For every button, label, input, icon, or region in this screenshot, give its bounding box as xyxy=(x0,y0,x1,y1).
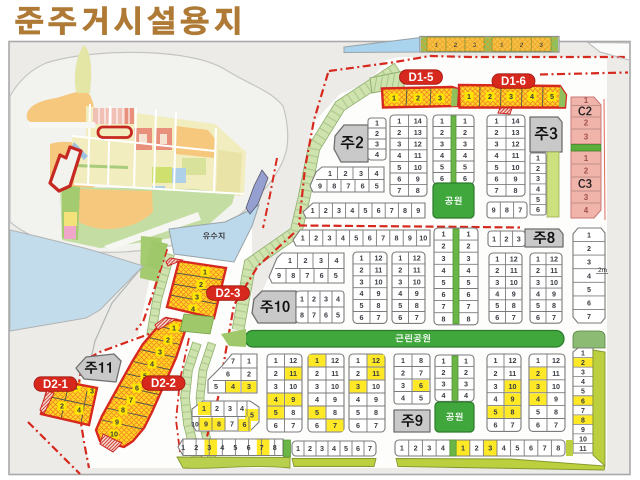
svg-text:3: 3 xyxy=(397,140,401,149)
svg-text:2: 2 xyxy=(356,369,360,378)
svg-text:1: 1 xyxy=(495,116,499,125)
svg-text:1: 1 xyxy=(315,356,319,365)
svg-text:7: 7 xyxy=(442,302,446,311)
svg-text:2: 2 xyxy=(314,234,318,243)
svg-text:5: 5 xyxy=(587,285,591,294)
svg-text:1: 1 xyxy=(296,444,300,453)
svg-text:5: 5 xyxy=(274,408,278,417)
svg-text:10: 10 xyxy=(191,421,199,428)
svg-text:6: 6 xyxy=(368,234,372,243)
svg-text:6: 6 xyxy=(226,370,230,379)
svg-text:8: 8 xyxy=(511,408,515,417)
svg-text:5: 5 xyxy=(495,301,499,310)
svg-text:1: 1 xyxy=(442,356,446,365)
svg-text:4: 4 xyxy=(350,206,354,215)
svg-text:3: 3 xyxy=(587,258,591,267)
svg-text:7: 7 xyxy=(260,443,264,452)
svg-text:2: 2 xyxy=(308,444,312,453)
svg-text:7: 7 xyxy=(467,302,471,311)
svg-text:4: 4 xyxy=(401,394,405,403)
svg-text:4: 4 xyxy=(335,256,339,265)
svg-text:11: 11 xyxy=(579,446,587,453)
svg-text:6: 6 xyxy=(495,313,499,322)
svg-text:4: 4 xyxy=(341,234,345,243)
svg-text:12: 12 xyxy=(331,356,339,365)
svg-text:7: 7 xyxy=(231,357,235,366)
svg-text:6: 6 xyxy=(274,421,278,430)
svg-text:5: 5 xyxy=(495,163,499,172)
svg-text:10: 10 xyxy=(413,277,421,286)
svg-text:3: 3 xyxy=(440,139,444,148)
svg-text:7: 7 xyxy=(587,312,591,321)
svg-text:1: 1 xyxy=(587,231,591,240)
svg-text:5: 5 xyxy=(550,92,554,101)
svg-text:7: 7 xyxy=(511,421,515,430)
svg-text:4: 4 xyxy=(360,289,364,298)
svg-text:8: 8 xyxy=(291,408,295,417)
svg-text:1: 1 xyxy=(301,234,305,243)
svg-text:11: 11 xyxy=(552,369,560,378)
svg-text:2: 2 xyxy=(504,234,508,243)
svg-text:4: 4 xyxy=(336,295,340,304)
svg-text:4: 4 xyxy=(581,379,585,386)
svg-text:3: 3 xyxy=(517,234,521,243)
svg-text:1: 1 xyxy=(181,443,185,452)
svg-text:10: 10 xyxy=(110,430,118,439)
svg-text:1: 1 xyxy=(288,256,292,265)
svg-text:2: 2 xyxy=(416,94,420,103)
svg-text:5: 5 xyxy=(397,163,401,172)
svg-text:11: 11 xyxy=(414,151,422,160)
svg-text:3: 3 xyxy=(463,139,467,148)
svg-text:4: 4 xyxy=(530,92,534,101)
svg-text:7: 7 xyxy=(129,396,133,405)
svg-text:2: 2 xyxy=(495,266,499,275)
svg-text:2: 2 xyxy=(584,118,589,127)
svg-text:3: 3 xyxy=(584,132,589,141)
svg-text:1: 1 xyxy=(356,356,360,365)
svg-text:5: 5 xyxy=(360,301,364,310)
svg-text:3: 3 xyxy=(494,382,498,391)
svg-text:1: 1 xyxy=(581,351,585,358)
svg-text:4: 4 xyxy=(587,271,591,280)
svg-text:6: 6 xyxy=(442,290,446,299)
svg-text:4: 4 xyxy=(441,444,445,453)
svg-text:4: 4 xyxy=(77,406,81,415)
svg-text:11: 11 xyxy=(372,369,380,378)
svg-text:1: 1 xyxy=(536,254,540,263)
svg-text:4: 4 xyxy=(231,382,235,391)
svg-text:3: 3 xyxy=(324,295,328,304)
svg-text:5: 5 xyxy=(315,408,319,417)
svg-text:2: 2 xyxy=(581,360,585,367)
svg-text:3: 3 xyxy=(427,444,431,453)
svg-text:7: 7 xyxy=(230,420,234,429)
svg-text:6: 6 xyxy=(397,174,401,183)
svg-text:1: 1 xyxy=(311,206,315,215)
svg-text:1: 1 xyxy=(492,234,496,243)
svg-text:2: 2 xyxy=(60,402,64,411)
svg-text:D1-5: D1-5 xyxy=(409,72,435,84)
svg-text:6: 6 xyxy=(536,205,540,214)
svg-text:3: 3 xyxy=(584,193,589,202)
svg-text:3: 3 xyxy=(360,277,364,286)
svg-text:8: 8 xyxy=(332,181,336,190)
svg-text:2: 2 xyxy=(536,266,540,275)
svg-text:5: 5 xyxy=(250,411,254,420)
svg-text:3: 3 xyxy=(337,206,341,215)
svg-text:2: 2 xyxy=(360,265,364,274)
svg-text:8: 8 xyxy=(121,406,125,415)
svg-text:4: 4 xyxy=(502,444,506,453)
svg-text:4: 4 xyxy=(584,206,589,215)
svg-text:2: 2 xyxy=(475,444,479,453)
svg-text:1: 1 xyxy=(463,116,467,125)
svg-text:10: 10 xyxy=(375,277,383,286)
svg-text:4: 4 xyxy=(463,151,467,160)
svg-text:12: 12 xyxy=(413,254,421,263)
svg-text:1: 1 xyxy=(392,94,396,103)
svg-text:6: 6 xyxy=(243,420,247,429)
svg-text:2: 2 xyxy=(464,368,468,377)
svg-text:2: 2 xyxy=(375,129,379,138)
svg-text:10: 10 xyxy=(550,278,558,287)
svg-text:5: 5 xyxy=(419,394,423,403)
svg-text:8: 8 xyxy=(415,301,419,310)
svg-text:4: 4 xyxy=(442,391,446,400)
svg-text:8: 8 xyxy=(556,444,560,453)
svg-text:8: 8 xyxy=(333,408,337,417)
svg-text:1: 1 xyxy=(202,404,206,413)
svg-text:2: 2 xyxy=(536,369,540,378)
svg-text:10: 10 xyxy=(331,382,339,391)
svg-text:8: 8 xyxy=(442,314,446,323)
svg-text:5: 5 xyxy=(581,389,585,396)
svg-text:4: 4 xyxy=(495,290,499,299)
svg-text:7: 7 xyxy=(581,408,585,415)
svg-text:8: 8 xyxy=(403,206,407,215)
svg-text:5: 5 xyxy=(536,301,540,310)
svg-text:2: 2 xyxy=(442,242,446,251)
svg-text:2: 2 xyxy=(194,443,198,452)
svg-text:9: 9 xyxy=(115,418,119,427)
svg-text:3: 3 xyxy=(495,278,499,287)
svg-text:3: 3 xyxy=(315,382,319,391)
svg-text:5: 5 xyxy=(354,234,358,243)
svg-text:9: 9 xyxy=(377,289,381,298)
svg-text:1: 1 xyxy=(401,356,405,365)
svg-text:3: 3 xyxy=(442,380,446,389)
svg-text:3: 3 xyxy=(320,444,324,453)
svg-text:2: 2 xyxy=(587,244,591,253)
svg-text:8: 8 xyxy=(554,408,558,417)
svg-text:2: 2 xyxy=(463,128,467,137)
svg-text:2: 2 xyxy=(247,370,251,379)
svg-text:11: 11 xyxy=(550,266,558,275)
svg-text:7: 7 xyxy=(419,369,423,378)
svg-text:6: 6 xyxy=(361,181,365,190)
svg-text:9: 9 xyxy=(511,395,515,404)
svg-text:1: 1 xyxy=(536,154,540,163)
svg-text:3: 3 xyxy=(359,169,363,178)
svg-text:3: 3 xyxy=(581,370,585,377)
svg-text:7: 7 xyxy=(312,311,316,320)
svg-text:8: 8 xyxy=(291,271,295,280)
svg-text:6: 6 xyxy=(135,384,139,393)
svg-text:6: 6 xyxy=(315,421,319,430)
svg-text:10: 10 xyxy=(419,234,427,243)
svg-text:5: 5 xyxy=(363,206,367,215)
svg-text:13: 13 xyxy=(414,128,422,137)
svg-text:4: 4 xyxy=(274,395,278,404)
svg-text:10: 10 xyxy=(552,382,560,391)
svg-text:2: 2 xyxy=(442,368,446,377)
svg-text:1: 1 xyxy=(494,356,498,365)
svg-text:4: 4 xyxy=(494,395,498,404)
svg-text:6: 6 xyxy=(419,381,423,390)
svg-text:1: 1 xyxy=(203,268,207,277)
svg-text:7: 7 xyxy=(397,186,401,195)
svg-text:3: 3 xyxy=(158,348,162,357)
svg-text:1: 1 xyxy=(398,254,402,263)
svg-text:12: 12 xyxy=(512,140,520,149)
svg-text:4: 4 xyxy=(440,151,444,160)
svg-text:6: 6 xyxy=(463,174,467,183)
svg-text:1: 1 xyxy=(172,324,176,333)
svg-text:8: 8 xyxy=(552,301,556,310)
svg-text:2: 2 xyxy=(304,256,308,265)
svg-text:8: 8 xyxy=(273,443,277,452)
svg-text:2: 2 xyxy=(398,265,402,274)
svg-text:8: 8 xyxy=(377,301,381,310)
svg-text:12: 12 xyxy=(289,356,297,365)
svg-text:6: 6 xyxy=(494,421,498,430)
svg-text:8: 8 xyxy=(300,311,304,320)
svg-text:12: 12 xyxy=(414,140,422,149)
svg-text:2: 2 xyxy=(584,166,589,175)
svg-text:6: 6 xyxy=(467,290,471,299)
svg-text:2: 2 xyxy=(215,404,219,413)
svg-text:7: 7 xyxy=(512,313,516,322)
svg-text:2m: 2m xyxy=(598,267,607,274)
svg-text:D2-3: D2-3 xyxy=(216,288,241,300)
svg-text:7: 7 xyxy=(543,444,547,453)
svg-text:5: 5 xyxy=(334,271,338,280)
svg-text:1: 1 xyxy=(274,356,278,365)
svg-text:1: 1 xyxy=(440,116,444,125)
svg-text:13: 13 xyxy=(512,128,520,137)
svg-text:9: 9 xyxy=(492,206,496,215)
svg-text:2: 2 xyxy=(440,128,444,137)
svg-text:3: 3 xyxy=(356,382,360,391)
svg-text:1: 1 xyxy=(300,295,304,304)
svg-text:6: 6 xyxy=(495,174,499,183)
svg-text:6: 6 xyxy=(320,271,324,280)
svg-text:4: 4 xyxy=(150,360,154,369)
svg-text:1: 1 xyxy=(464,356,468,365)
svg-text:7: 7 xyxy=(381,234,385,243)
svg-text:7: 7 xyxy=(415,313,419,322)
svg-text:4: 4 xyxy=(240,404,244,413)
svg-text:2: 2 xyxy=(166,336,170,345)
svg-text:11: 11 xyxy=(289,369,297,378)
svg-text:1: 1 xyxy=(442,230,446,239)
svg-text:1: 1 xyxy=(461,444,465,453)
svg-text:4: 4 xyxy=(442,266,446,275)
svg-text:5: 5 xyxy=(463,162,467,171)
svg-text:5: 5 xyxy=(494,408,498,417)
svg-text:14: 14 xyxy=(414,116,422,125)
svg-text:12: 12 xyxy=(552,356,560,365)
svg-text:3: 3 xyxy=(438,94,442,103)
svg-text:3: 3 xyxy=(328,234,332,243)
svg-text:5: 5 xyxy=(442,278,446,287)
svg-text:8: 8 xyxy=(505,206,509,215)
svg-text:6: 6 xyxy=(587,298,591,307)
svg-text:4: 4 xyxy=(536,395,540,404)
svg-text:8: 8 xyxy=(514,186,518,195)
svg-text:2: 2 xyxy=(401,369,405,378)
svg-text:5: 5 xyxy=(536,408,540,417)
svg-text:3: 3 xyxy=(195,293,199,302)
svg-text:7: 7 xyxy=(333,421,337,430)
svg-text:14: 14 xyxy=(512,116,520,125)
svg-text:11: 11 xyxy=(413,265,421,274)
svg-text:11: 11 xyxy=(510,266,518,275)
svg-text:8: 8 xyxy=(374,408,378,417)
svg-text:4: 4 xyxy=(397,151,401,160)
svg-text:5: 5 xyxy=(515,444,519,453)
svg-text:8: 8 xyxy=(416,186,420,195)
svg-text:1: 1 xyxy=(375,119,379,128)
svg-text:5: 5 xyxy=(440,162,444,171)
svg-text:1: 1 xyxy=(397,116,401,125)
svg-text:4: 4 xyxy=(375,169,379,178)
svg-text:5: 5 xyxy=(356,408,360,417)
svg-text:7: 7 xyxy=(374,421,378,430)
svg-text:12: 12 xyxy=(372,356,380,365)
svg-text:4: 4 xyxy=(536,185,540,194)
svg-text:1: 1 xyxy=(467,230,471,239)
svg-text:3: 3 xyxy=(536,382,540,391)
svg-text:6: 6 xyxy=(581,398,585,405)
svg-text:7: 7 xyxy=(291,421,295,430)
svg-text:4: 4 xyxy=(398,289,402,298)
svg-text:9: 9 xyxy=(416,174,420,183)
svg-text:10: 10 xyxy=(372,382,380,391)
svg-text:5: 5 xyxy=(536,195,540,204)
svg-text:10: 10 xyxy=(579,437,587,444)
svg-text:12: 12 xyxy=(509,356,517,365)
svg-text:12: 12 xyxy=(550,254,558,263)
svg-text:2: 2 xyxy=(344,169,348,178)
svg-text:4: 4 xyxy=(315,395,319,404)
svg-text:2: 2 xyxy=(467,242,471,251)
svg-text:8: 8 xyxy=(419,356,423,365)
svg-text:4: 4 xyxy=(332,444,336,453)
svg-text:2: 2 xyxy=(315,369,319,378)
svg-text:6: 6 xyxy=(536,421,540,430)
svg-text:7: 7 xyxy=(377,313,381,322)
svg-text:7: 7 xyxy=(552,313,556,322)
svg-text:12: 12 xyxy=(510,254,518,263)
svg-text:3: 3 xyxy=(207,443,211,452)
svg-text:5: 5 xyxy=(375,181,379,190)
svg-text:12: 12 xyxy=(375,254,383,263)
svg-text:8: 8 xyxy=(217,420,221,429)
svg-text:4: 4 xyxy=(495,151,499,160)
svg-text:2: 2 xyxy=(324,206,328,215)
svg-text:7: 7 xyxy=(368,444,372,453)
svg-text:6: 6 xyxy=(377,206,381,215)
svg-text:6: 6 xyxy=(247,443,251,452)
svg-text:9: 9 xyxy=(333,395,337,404)
svg-text:7: 7 xyxy=(390,206,394,215)
svg-text:10: 10 xyxy=(512,163,520,172)
svg-text:2: 2 xyxy=(495,128,499,137)
svg-text:10: 10 xyxy=(510,278,518,287)
svg-text:3: 3 xyxy=(398,277,402,286)
svg-text:10: 10 xyxy=(509,382,517,391)
svg-text:10: 10 xyxy=(289,382,297,391)
svg-text:3: 3 xyxy=(536,278,540,287)
svg-text:2: 2 xyxy=(488,92,492,101)
svg-text:2: 2 xyxy=(274,369,278,378)
svg-text:11: 11 xyxy=(375,265,383,274)
svg-text:5: 5 xyxy=(467,278,471,287)
svg-text:D2-2: D2-2 xyxy=(151,378,176,390)
svg-text:1: 1 xyxy=(247,357,251,366)
svg-text:3: 3 xyxy=(401,381,405,390)
svg-text:2: 2 xyxy=(414,444,418,453)
svg-text:4: 4 xyxy=(375,150,379,159)
svg-text:1: 1 xyxy=(495,254,499,263)
svg-text:2: 2 xyxy=(312,295,316,304)
svg-text:9: 9 xyxy=(514,174,518,183)
svg-text:4: 4 xyxy=(220,443,224,452)
svg-text:D2-1: D2-1 xyxy=(43,379,69,391)
svg-text:9: 9 xyxy=(554,395,558,404)
svg-text:2: 2 xyxy=(397,128,401,137)
svg-text:8: 8 xyxy=(467,314,471,323)
svg-text:6: 6 xyxy=(398,313,402,322)
svg-text:4: 4 xyxy=(464,391,468,400)
svg-text:6: 6 xyxy=(356,421,360,430)
svg-text:4: 4 xyxy=(467,266,471,275)
svg-text:3: 3 xyxy=(488,444,492,453)
svg-text:1: 1 xyxy=(360,254,364,263)
svg-text:6: 6 xyxy=(360,313,364,322)
svg-text:6: 6 xyxy=(324,311,328,320)
svg-text:7: 7 xyxy=(518,206,522,215)
svg-text:5: 5 xyxy=(398,301,402,310)
svg-text:5: 5 xyxy=(214,382,218,391)
svg-text:9: 9 xyxy=(204,420,208,429)
svg-text:7: 7 xyxy=(495,186,499,195)
svg-text:7: 7 xyxy=(554,421,558,430)
svg-text:9: 9 xyxy=(374,395,378,404)
svg-text:7: 7 xyxy=(305,271,309,280)
svg-text:11: 11 xyxy=(331,369,339,378)
svg-text:3: 3 xyxy=(464,380,468,389)
svg-text:1: 1 xyxy=(400,444,404,453)
svg-text:3: 3 xyxy=(467,254,471,263)
svg-text:10: 10 xyxy=(414,163,422,172)
svg-text:5: 5 xyxy=(344,444,348,453)
svg-text:3: 3 xyxy=(495,140,499,149)
svg-text:1: 1 xyxy=(328,169,332,178)
svg-text:5: 5 xyxy=(336,311,340,320)
